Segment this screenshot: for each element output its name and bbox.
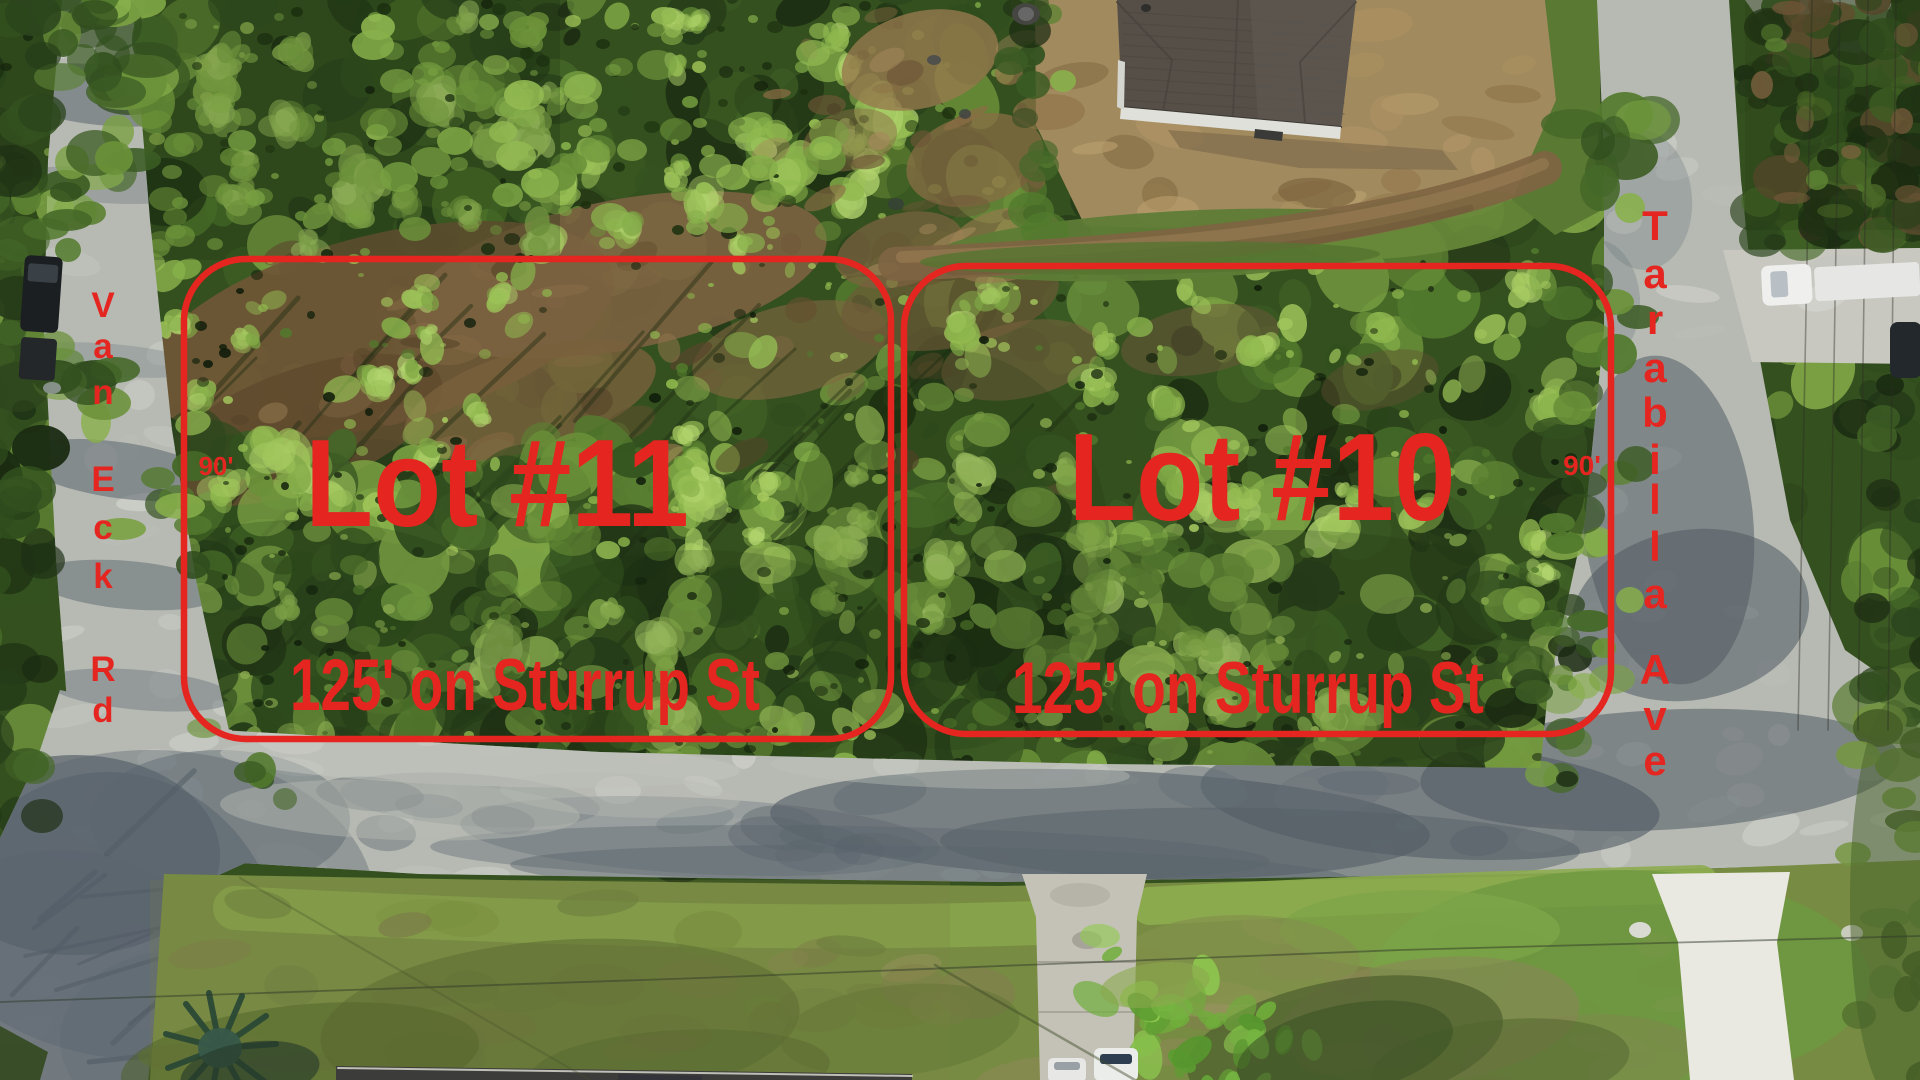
svg-text:Lot #11: Lot #11 <box>305 415 689 553</box>
svg-text:d: d <box>92 691 113 730</box>
svg-text:c: c <box>93 508 112 547</box>
svg-text:a: a <box>1643 344 1667 391</box>
svg-text:a: a <box>1643 250 1667 297</box>
svg-text:Lot #10: Lot #10 <box>1069 409 1456 547</box>
svg-text:125' on Sturrup St: 125' on Sturrup St <box>290 645 760 726</box>
svg-text:a: a <box>1643 570 1667 617</box>
svg-text:T: T <box>1642 202 1668 249</box>
svg-text:A: A <box>1640 646 1670 693</box>
svg-text:E: E <box>91 460 114 499</box>
svg-text:l: l <box>1649 476 1661 523</box>
svg-text:v: v <box>1643 692 1667 739</box>
svg-text:125' on Sturrup St: 125' on Sturrup St <box>1012 648 1484 729</box>
svg-text:l: l <box>1649 523 1661 570</box>
svg-text:90': 90' <box>1563 450 1601 481</box>
svg-text:r: r <box>1647 296 1663 343</box>
svg-text:V: V <box>91 286 115 325</box>
svg-text:a: a <box>93 327 113 366</box>
svg-text:b: b <box>1642 389 1668 436</box>
svg-text:n: n <box>92 373 113 412</box>
svg-text:R: R <box>90 650 115 689</box>
svg-text:e: e <box>1643 737 1666 784</box>
svg-text:90': 90' <box>198 451 233 481</box>
svg-text:k: k <box>93 557 113 596</box>
